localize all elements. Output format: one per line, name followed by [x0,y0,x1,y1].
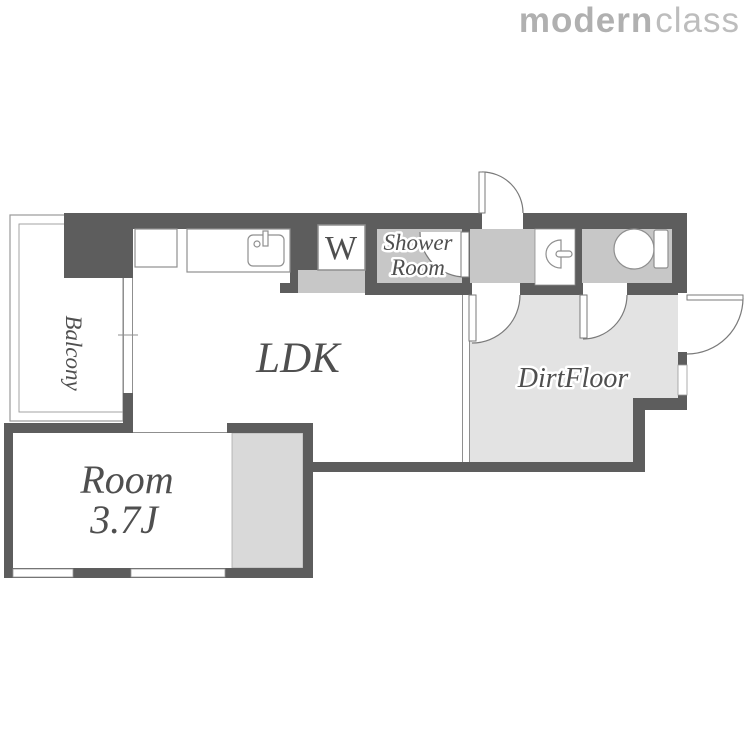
toilet-bowl-icon [614,229,654,269]
wall-segment [4,423,13,578]
wall-segment [227,423,313,433]
dirt-floor-label: DirtFloor [517,363,629,394]
wall-segment [312,462,645,472]
door-leaf [461,232,469,277]
balcony-label: Balcony [61,315,86,391]
wall-segment [575,213,582,283]
door-opening [472,283,520,295]
wall-segment [303,423,313,578]
washbasin-faucet [556,251,572,257]
ldk-label: LDK [255,335,342,382]
wall-segment [298,213,318,270]
shower-room-label-line2: Room [390,255,445,280]
door-leaf [469,295,476,341]
wall-segment [633,398,645,472]
closet-floor [232,433,303,568]
door-opening [583,283,627,295]
utility-floor [298,270,365,293]
door-leaf [479,172,485,213]
entrance-door [687,295,743,354]
floor-plan-page: modernclass [0,0,750,750]
wall-segment [290,213,298,293]
wall-segment [365,213,377,293]
cabinet [135,229,177,267]
door-leaf [687,295,743,300]
door-top [479,172,523,213]
wall-segment [678,352,687,365]
door-swing-area [687,298,743,354]
door-opening [482,213,523,229]
floor-plan: Balcony LDK Room 3.7J DirtFloor Shower R… [0,0,750,750]
door-swing-area [482,172,523,213]
washer-label: W [325,230,358,267]
room-label-line1: Room [79,457,173,502]
wall-segment [365,283,678,295]
window [131,569,225,577]
toilet-tank-icon [654,230,668,268]
shower-room-label-line1: Shower [384,230,454,255]
window [13,569,73,577]
sink-faucet [263,231,268,246]
wall-segment [280,283,290,293]
room-label-line2: 3.7J [89,497,160,542]
window [678,365,687,395]
wall-segment [64,213,133,278]
washroom-floor [470,229,537,285]
wall-segment [672,213,687,293]
wall-segment [4,423,133,433]
door-leaf [580,295,587,338]
